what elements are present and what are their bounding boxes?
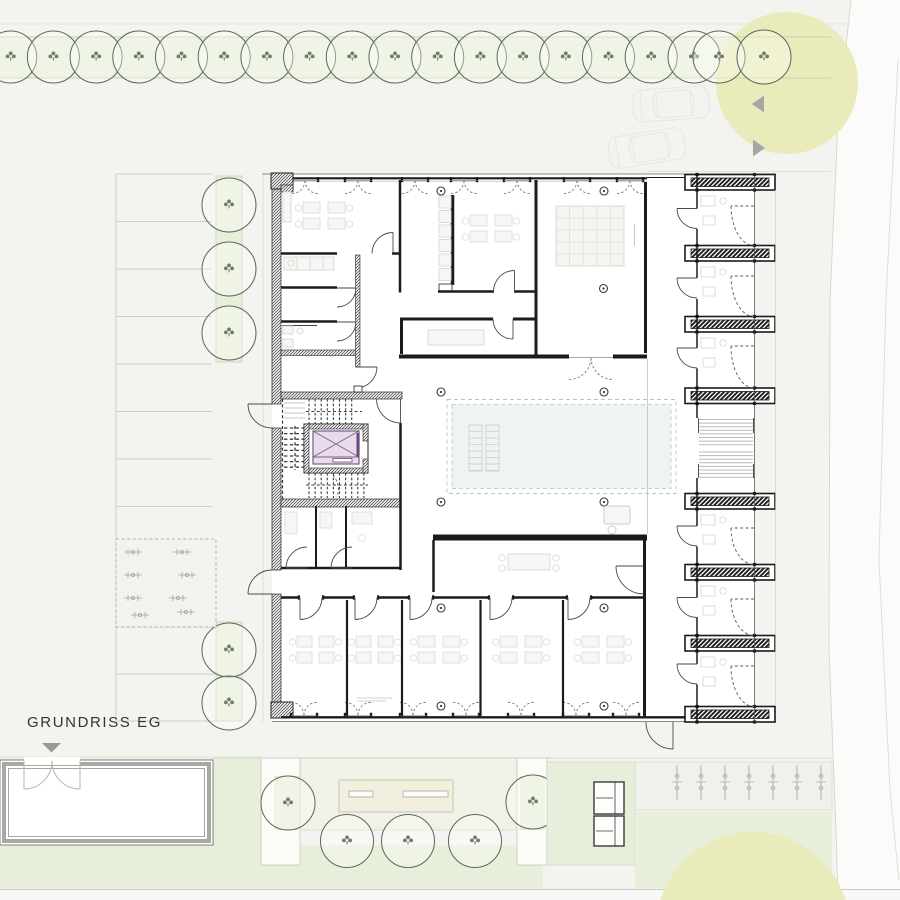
svg-text:GRUNDRISS EG: GRUNDRISS EG	[27, 714, 162, 731]
